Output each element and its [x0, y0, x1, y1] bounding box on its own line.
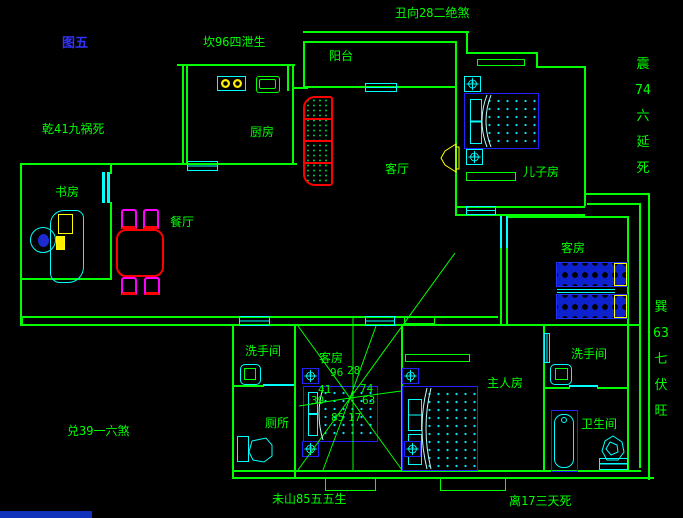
- stove: [217, 76, 246, 91]
- bay-window: [440, 477, 506, 491]
- door: [263, 384, 294, 386]
- bay-window: [325, 477, 376, 491]
- room-label-master: 主人房: [487, 377, 523, 389]
- annotation-dui: 兑39一六煞: [67, 425, 129, 437]
- door: [102, 172, 105, 203]
- door: [506, 216, 508, 248]
- north-arrow-icon: [302, 441, 319, 457]
- annotation-zhen: 震 74 六 延 死: [630, 52, 656, 182]
- door: [107, 172, 110, 203]
- wall-segment: [110, 163, 112, 174]
- washbasin-bowl: [244, 368, 256, 380]
- washbasin: [240, 364, 261, 385]
- wall-segment: [186, 64, 188, 165]
- chair: [143, 209, 159, 229]
- bathtub-drain-icon: [561, 417, 567, 423]
- room-label-dining: 餐厅: [170, 216, 194, 228]
- chair: [121, 209, 137, 229]
- wall-segment: [597, 387, 629, 389]
- room-label-sons-room: 儿子房: [523, 166, 559, 178]
- wall-segment: [639, 203, 641, 468]
- annotation-chou: 丑向28二绝煞: [395, 7, 469, 19]
- wall-segment: [292, 64, 294, 165]
- wall-segment: [294, 324, 296, 478]
- north-arrow-icon: [302, 368, 319, 384]
- sofa-cushion-divider: [305, 140, 331, 142]
- annotation-qian: 乾41九祸死: [42, 123, 104, 135]
- wall-segment: [584, 66, 586, 206]
- wall-segment: [627, 216, 629, 472]
- star-number: 17: [348, 412, 361, 423]
- wardrobe: [405, 354, 470, 362]
- wall-segment: [586, 193, 650, 195]
- bed-headboard: [408, 399, 422, 431]
- chair: [144, 277, 160, 295]
- window: [239, 316, 270, 326]
- window: [404, 316, 435, 324]
- star-number: 63: [362, 395, 375, 406]
- study-chair-seat: [38, 234, 49, 247]
- wall-segment: [466, 31, 468, 54]
- window: [365, 316, 395, 326]
- star-number: 39: [311, 395, 324, 406]
- shelf: [477, 59, 525, 66]
- annotation-li: 离17三天死: [509, 495, 571, 507]
- wall-segment: [455, 87, 457, 216]
- wall-segment: [110, 202, 112, 280]
- north-arrow-icon: [402, 368, 419, 384]
- wall-segment: [466, 52, 538, 54]
- room-label-bathroom: 卫生间: [581, 418, 617, 430]
- wall-segment: [232, 385, 264, 387]
- room-label-living: 客厅: [385, 163, 409, 175]
- wall-segment: [20, 316, 23, 326]
- sofa: [303, 96, 333, 186]
- sofa-cushion-divider: [305, 162, 331, 164]
- star-number: 28: [347, 365, 360, 376]
- wall-segment: [587, 203, 641, 205]
- star-number: 74: [360, 383, 373, 394]
- room-label-balcony: 阳台: [329, 50, 353, 62]
- window-edge-fragment: [0, 511, 92, 518]
- shelf: [466, 172, 516, 181]
- wall-segment: [508, 216, 628, 218]
- wall-segment: [287, 64, 289, 91]
- wall-segment: [303, 31, 469, 33]
- wall-segment: [20, 163, 22, 326]
- room-label-study: 书房: [55, 186, 79, 198]
- star-number: 96: [330, 367, 343, 378]
- door: [569, 385, 598, 387]
- floor-plan-canvas: 图五 坎96四泄生 丑向28二绝煞 乾41九祸死 兑39一六煞 未山85五五生 …: [0, 0, 683, 518]
- wall-segment: [182, 64, 184, 165]
- bed-mattress: [425, 390, 476, 469]
- wall-segment: [545, 387, 570, 389]
- desk-item: [56, 236, 65, 250]
- room-label-guest-center: 客房: [319, 352, 343, 364]
- toilet-base: [599, 458, 628, 470]
- annotation-wei: 未山85五五生: [272, 493, 346, 505]
- room-label-washroom-right: 洗手间: [571, 348, 607, 360]
- bed-pillow: [614, 263, 627, 286]
- kitchen-sink-basin: [259, 79, 276, 89]
- bed-gap-line: [557, 292, 615, 293]
- wall-segment: [177, 64, 295, 66]
- window: [187, 161, 218, 171]
- star-number: 85: [331, 412, 344, 423]
- kitchen-sink: [256, 76, 280, 93]
- bed-pillow: [614, 295, 627, 318]
- annotation-xun: 巽 63 七 伏 旺: [648, 295, 674, 425]
- wall-segment: [20, 163, 297, 165]
- north-arrow-icon: [464, 76, 481, 92]
- sofa-cushion-divider: [305, 118, 331, 120]
- window: [544, 333, 550, 363]
- room-label-kitchen: 厨房: [250, 126, 274, 138]
- annotation-kan: 坎96四泄生: [203, 36, 265, 48]
- room-label-guest-right: 客房: [561, 242, 585, 254]
- bed-headboard: [470, 99, 482, 144]
- wall-segment: [536, 66, 586, 68]
- north-arrow-icon: [466, 149, 483, 165]
- bed-mattress: [485, 97, 537, 147]
- washbasin-bowl: [555, 368, 568, 380]
- north-arrow-icon: [404, 441, 421, 457]
- figure-title: 图五: [62, 37, 88, 50]
- wall-segment: [20, 324, 641, 326]
- washbasin: [550, 364, 572, 385]
- window: [466, 206, 496, 215]
- window: [365, 83, 397, 92]
- bathtub: [551, 410, 578, 472]
- bed-gap-line: [557, 289, 615, 290]
- dining-table: [116, 229, 164, 277]
- balcony-outline: [303, 41, 457, 88]
- desk-computer: [58, 214, 73, 234]
- toilet-tank: [237, 436, 249, 462]
- wall-segment: [232, 324, 234, 478]
- room-label-washroom-left: 洗手间: [245, 345, 281, 357]
- room-label-toilet: 厕所: [265, 417, 289, 429]
- chair: [121, 277, 137, 295]
- door: [500, 216, 502, 248]
- stove-burner-icon: [233, 79, 242, 88]
- stove-burner-icon: [221, 79, 230, 88]
